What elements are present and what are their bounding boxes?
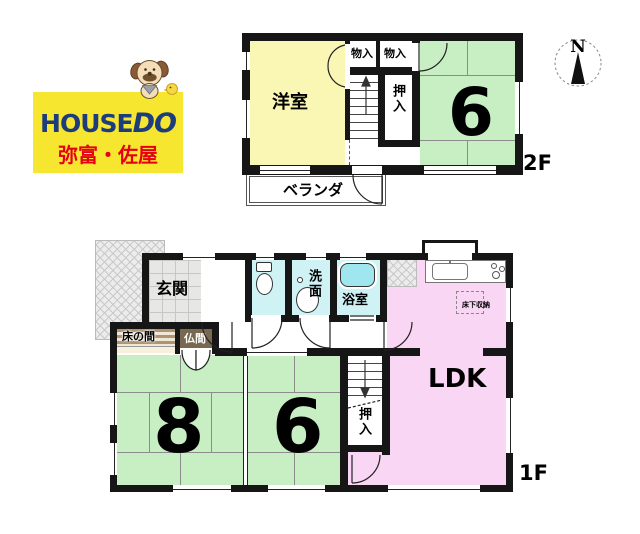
room-label-washroom: 洗面	[307, 269, 320, 299]
window	[506, 398, 513, 453]
toilet-tank	[256, 262, 272, 272]
window	[173, 485, 231, 492]
room-label-tatami6-1f: 6	[272, 390, 324, 464]
door-gap	[349, 315, 376, 322]
tatami-line	[467, 41, 468, 75]
room-label-bathroom: 浴室	[342, 294, 368, 307]
door-gap	[412, 43, 420, 71]
stairs-2f	[350, 75, 378, 140]
room-label-closet-2f: 押入	[391, 84, 404, 114]
window	[110, 393, 117, 425]
floor2-label: 2F	[523, 153, 552, 174]
wall	[142, 253, 149, 329]
fridge-hatch	[387, 257, 417, 287]
tatami-line	[149, 392, 150, 452]
wall	[340, 348, 420, 356]
room-label-tatami6-2f: 6	[448, 80, 494, 146]
sliding-door	[247, 348, 307, 356]
wall	[110, 322, 219, 329]
wall	[378, 140, 420, 147]
window	[340, 253, 366, 260]
tokonoma-step	[117, 346, 175, 353]
wall	[378, 70, 385, 147]
wall	[340, 348, 348, 485]
wall	[382, 348, 390, 455]
veranda-door-gap	[352, 166, 382, 174]
room-label-tokonoma: 床の間	[122, 331, 155, 342]
wall	[376, 41, 380, 67]
wall	[483, 348, 506, 356]
logo-do-text: DO	[133, 108, 176, 139]
room-label-storage1: 物入	[351, 48, 373, 59]
kitchen-sink	[432, 263, 468, 280]
room-label-western: 洋室	[272, 94, 308, 112]
room-label-ldk: LDK	[428, 366, 486, 392]
wall	[242, 33, 523, 41]
window	[110, 443, 117, 475]
housedo-logo: HOUSEDO 弥富・佐屋	[33, 92, 183, 173]
stairs-1f	[348, 356, 382, 400]
door-gap	[345, 44, 350, 89]
room-label-tatami8: 8	[153, 390, 205, 464]
underfloor-storage-label: 床下収納	[462, 301, 478, 310]
toilet-bowl	[256, 273, 273, 295]
underfloor-storage-box: 床下収納	[456, 291, 484, 314]
room-1f-ldk-band	[348, 452, 390, 485]
window	[424, 166, 496, 174]
window	[242, 100, 250, 138]
bay-opening-gap	[428, 253, 472, 260]
wall	[330, 253, 337, 322]
window	[506, 288, 513, 322]
logo-branch-text: 弥富・佐屋	[33, 139, 183, 168]
wall	[348, 445, 382, 452]
understair-area	[349, 140, 378, 165]
fusuma-divider	[243, 355, 248, 485]
tatami-line	[211, 392, 212, 452]
washbasin-knob	[297, 277, 303, 283]
wall	[285, 253, 292, 322]
stove-burner-icon	[491, 263, 497, 269]
kitchen-bay-window	[422, 240, 478, 253]
window	[268, 485, 325, 492]
floor1-label: 1F	[519, 463, 548, 484]
window	[242, 52, 250, 70]
veranda-2f: ベランダ	[246, 173, 386, 206]
door-gap	[251, 315, 281, 322]
wall	[380, 253, 387, 322]
window	[306, 253, 326, 260]
room-label-closet-1f: 押入	[357, 407, 370, 437]
compass-icon: N	[552, 26, 604, 92]
room-label-butsuma: 仏間	[184, 333, 206, 344]
room-label-storage2: 物入	[384, 48, 406, 59]
window	[388, 485, 480, 492]
wall	[175, 322, 180, 354]
dog-mascot-icon	[126, 58, 184, 100]
stove-burner-icon	[499, 266, 505, 272]
bathtub-inner	[340, 263, 375, 287]
room-label-entrance: 玄関	[156, 281, 188, 297]
window	[515, 82, 523, 134]
door-gap	[299, 315, 329, 322]
entrance-door	[183, 253, 215, 260]
veranda-label: ベランダ	[283, 183, 343, 198]
stove-burner-icon	[492, 271, 500, 279]
window	[260, 166, 310, 174]
wall	[245, 253, 252, 322]
window	[256, 253, 274, 260]
logo-house-text: HOUSE	[40, 109, 133, 138]
